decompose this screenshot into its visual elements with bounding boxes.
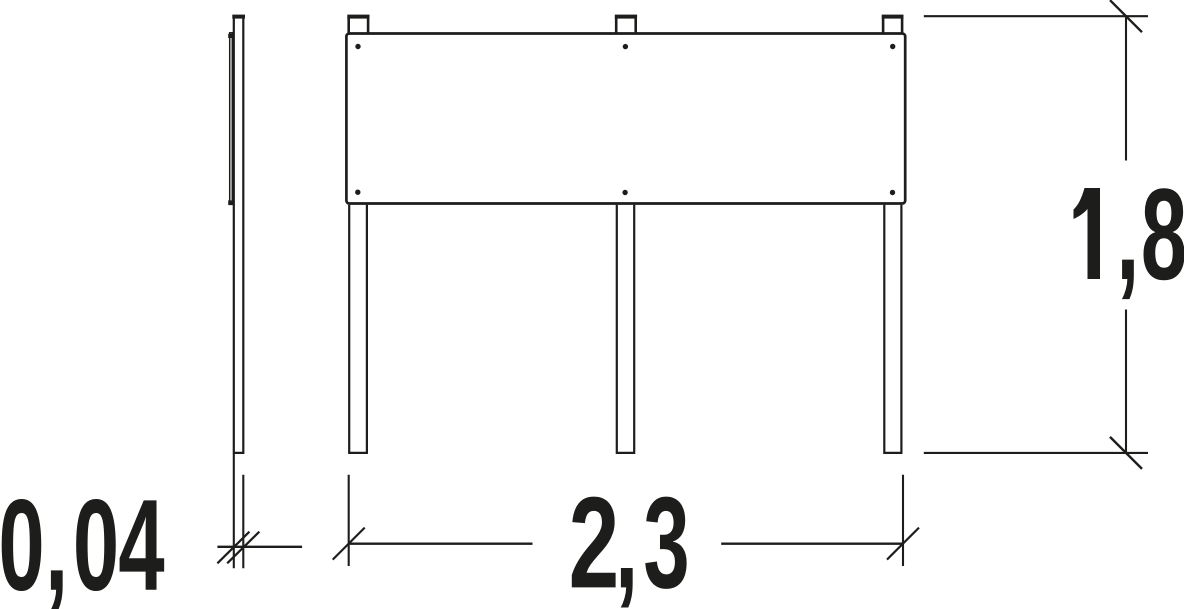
svg-text:0,04: 0,04 bbox=[0, 473, 165, 609]
svg-text:2: 2 bbox=[569, 469, 620, 609]
svg-text:,3: ,3 bbox=[615, 471, 690, 609]
svg-text:,8: ,8 bbox=[1116, 162, 1184, 307]
